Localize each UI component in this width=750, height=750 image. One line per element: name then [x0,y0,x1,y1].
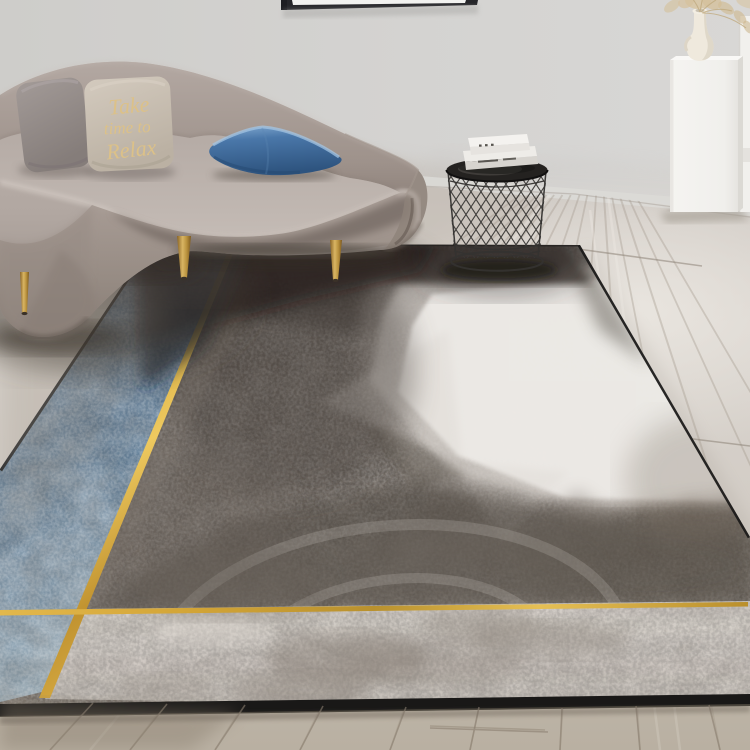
svg-text:Take: Take [108,91,151,119]
svg-text:Relax: Relax [104,134,158,164]
